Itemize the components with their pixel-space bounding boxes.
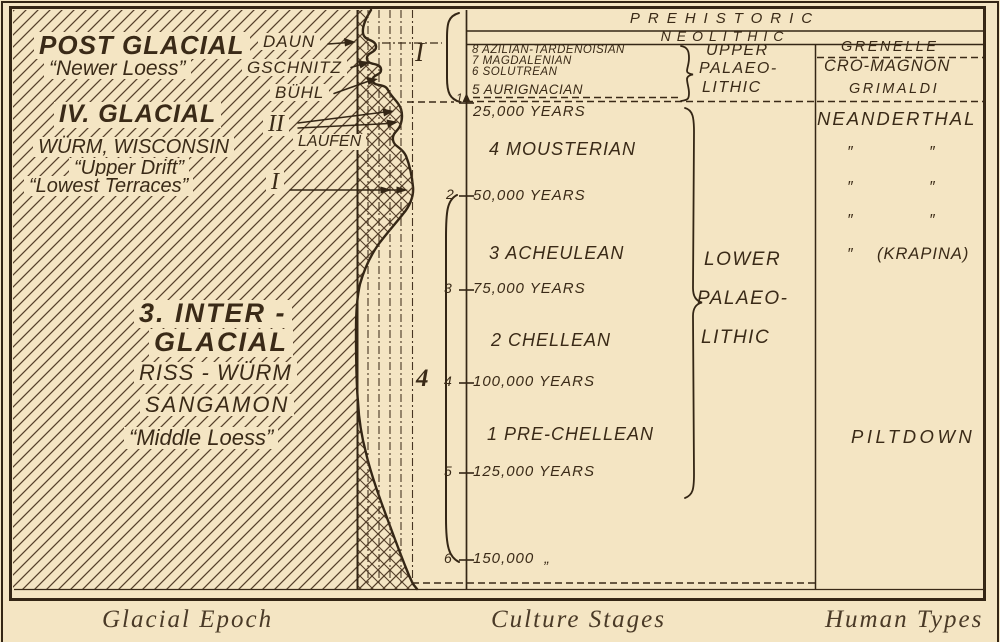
lower-palaeolithic-word3: LITHIC: [701, 328, 770, 347]
lower-palaeolithic-word2: PALAEO-: [697, 289, 788, 308]
stage-mousterian: 4 MOUSTERIAN: [489, 140, 636, 158]
lower-palaeolithic-word1: LOWER: [704, 250, 781, 269]
human-cro-magnon: CRO-MAGNON: [824, 58, 950, 75]
tick-label-4: 4: [444, 374, 452, 388]
ditto-mark: ″: [847, 180, 853, 196]
newer-loess-label: “Newer Loess”: [44, 58, 191, 79]
numeral-ii: II: [263, 112, 289, 136]
year-25000: 25,000 YEARS: [473, 104, 586, 119]
interglacial-line2: GLACIAL: [149, 329, 293, 357]
tick-label-3: 3: [444, 281, 452, 295]
tick-label-2: 2: [446, 187, 454, 201]
year-125000: 125,000 YEARS: [473, 464, 595, 479]
ditto-mark: ″: [929, 145, 935, 161]
group-braces: [681, 46, 702, 498]
numeral-i: I: [266, 170, 284, 194]
glacial-iv-names: WÜRM, WISCONSIN: [33, 137, 234, 157]
stage-label-laufen: LAUFEN: [293, 134, 366, 150]
bracket-numeral-lower: 4: [416, 366, 429, 392]
tick-label-6: 6: [444, 551, 452, 565]
stage-label-daun: DAUN: [258, 33, 320, 50]
stage-label-gschnitz: GSCHNITZ: [242, 59, 347, 76]
year-75000: 75,000 YEARS: [473, 281, 586, 296]
glacial-iv-title: IV. GLACIAL: [54, 102, 221, 128]
upper-stage-6: 6 SOLUTREAN: [472, 67, 557, 79]
tick-label-1: 1: [456, 92, 463, 104]
tick1-up-arrowhead: [463, 93, 471, 102]
dashed-rules: [407, 58, 983, 584]
year-150000: 150,000 „: [473, 551, 551, 566]
caption-culture-stages: Culture Stages: [491, 606, 666, 634]
year-50000: 50,000 YEARS: [473, 188, 586, 203]
riss-wurm-label: RISS - WÜRM: [134, 362, 297, 384]
tick-label-5: 5: [444, 464, 452, 478]
ditto-mark: ″: [929, 180, 935, 196]
post-glacial-title: POST GLACIAL: [34, 32, 250, 59]
sangamon-label: SANGAMON: [140, 394, 294, 416]
ditto-mark: ″: [847, 213, 853, 229]
middle-loess-label: “Middle Loess”: [124, 427, 278, 449]
stage-pre-chellean: 1 PRE-CHELLEAN: [487, 425, 654, 443]
caption-glacial-epoch: Glacial Epoch: [102, 606, 273, 634]
ditto-mark: ″: [847, 247, 853, 263]
upper-stage-5: 5 AURIGNACIAN: [472, 83, 583, 97]
human-grimaldi: GRIMALDI: [846, 82, 942, 97]
human-neanderthal: NEANDERTHAL: [817, 110, 976, 129]
stage-acheulean: 3 ACHEULEAN: [489, 244, 624, 262]
upper-palaeolithic-word3: LITHIC: [702, 80, 762, 96]
upper-palaeolithic-word2: PALAEO-: [699, 61, 778, 77]
human-grenelle: GRENELLE: [841, 40, 938, 55]
interglacial-line1: 3. INTER -: [134, 300, 292, 328]
crosshatch-band: [357, 10, 417, 589]
lowest-terraces-label: “Lowest Terraces”: [24, 176, 193, 196]
stage-chellean: 2 CHELLEAN: [491, 331, 611, 349]
caption-human-types: Human Types: [825, 606, 983, 634]
ditto-mark: ″: [847, 145, 853, 161]
band-prehistoric: PREHISTORIC: [466, 11, 984, 26]
bracket-numeral-upper: I: [415, 39, 424, 67]
human-krapina: (KRAPINA): [877, 246, 969, 263]
stage-label-buhl: BÜHL: [270, 84, 329, 101]
human-piltdown: PILTDOWN: [851, 428, 975, 447]
ditto-mark: ″: [929, 213, 935, 229]
upper-palaeolithic-word1: UPPER: [706, 43, 769, 59]
year-100000: 100,000 YEARS: [473, 374, 595, 389]
diagram-page: POST GLACIAL “Newer Loess” DAUN GSCHNITZ…: [0, 0, 1000, 642]
